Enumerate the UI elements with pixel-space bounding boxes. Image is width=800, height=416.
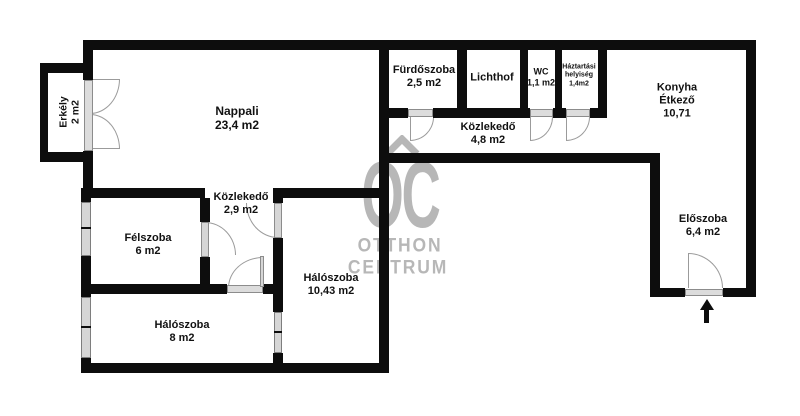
room-label-haloszoba-kis: Hálószoba 8 m2 (154, 319, 209, 345)
room-name: Hálószoba (154, 319, 209, 332)
room-name2: helyiség (562, 72, 595, 80)
room-label-eloszoba: Előszoba 6,4 m2 (679, 213, 727, 239)
window-tick (274, 331, 282, 333)
room-label-erkely: Erkély 2 m2 (58, 96, 83, 128)
wall-haloszoba-nagy-left-seg2 (273, 238, 283, 312)
wall-balcony-bottom (40, 152, 93, 162)
room-area: 10,43 m2 (303, 285, 358, 298)
wall-felszoba-right-seg1 (200, 198, 210, 222)
entrance-arrow-icon (700, 299, 714, 310)
room-area: 1,4m2 (562, 80, 595, 88)
room-label-konyha: Konyha Étkező 10,71 (657, 82, 697, 121)
wall-nappali-bottom-seg2 (275, 188, 379, 198)
room-area: 10,71 (657, 107, 697, 120)
room-area: 2 m2 (70, 96, 82, 128)
room-name: Közlekedő (213, 191, 268, 204)
wall-left-upper (83, 40, 93, 80)
room-label-furdoszoba: Fürdőszoba 2,5 m2 (393, 64, 455, 90)
wall-balcony-left (40, 63, 48, 162)
wall-toprow-bottom-seg2 (433, 108, 530, 118)
room-area: 23,4 m2 (215, 118, 259, 132)
wall-eloszoba-bottom-seg1 (650, 288, 685, 297)
wall-toprow-bottom-seg4 (590, 108, 607, 118)
wall-haloszoba-nagy-left-seg3 (273, 353, 283, 373)
wall-bedroom-divider-seg2 (263, 284, 283, 294)
room-name: Félszoba (124, 232, 171, 245)
room-name: Fürdőszoba (393, 64, 455, 77)
room-label-kozlekedo-also: Közlekedő 2,9 m2 (213, 191, 268, 217)
room-area: 2,5 m2 (393, 77, 455, 90)
felszoba-door-leaf (201, 222, 209, 257)
haloszoba-kis-door-sill (227, 285, 263, 293)
wall-top (83, 40, 756, 50)
haloszoba-nagy-door-leaf (274, 203, 282, 238)
room-label-nappali: Nappali 23,4 m2 (215, 104, 259, 132)
room-label-kozlekedo-felso: Közlekedő 4,8 m2 (460, 121, 515, 147)
room-name: Háztartási (562, 63, 595, 71)
wall-eloszoba-bottom-seg2 (723, 288, 756, 297)
room-label-wc: WC 1,1 m2 (527, 66, 555, 87)
room-area: 1,1 m2 (527, 77, 555, 88)
room-label-lichthof: Lichthof (470, 72, 513, 85)
room-area: 6,4 m2 (679, 226, 727, 239)
wall-haloszoba-nagy-left-seg1 (273, 188, 283, 203)
watermark-otthon-centrum: OC OTTHON CENTRUM (0, 0, 800, 416)
room-area: 8 m2 (154, 332, 209, 345)
wall-eloszoba-left (650, 155, 660, 297)
wall-left-lower (81, 358, 91, 373)
room-name: Konyha (657, 82, 697, 95)
entrance-door-sill (685, 289, 723, 296)
window-felszoba (81, 202, 91, 256)
room-name: Hálószoba (303, 272, 358, 285)
wall-bottom (81, 363, 389, 373)
window-tick (81, 227, 91, 229)
haztartasi-door-sill (566, 109, 590, 117)
wall-toprow-bottom-seg1 (389, 108, 408, 118)
furdoszoba-door-sill (408, 109, 433, 117)
room-label-haztartasi: Háztartási helyiség 1,4m2 (562, 63, 595, 88)
wall-toprow-bottom-seg3 (553, 108, 566, 118)
room-name: Előszoba (679, 213, 727, 226)
room-name: WC (527, 66, 555, 77)
wc-door-sill (530, 109, 553, 117)
balcony-door-sill (84, 80, 93, 151)
floorplan-canvas: OC OTTHON CENTRUM (0, 0, 800, 416)
room-name: Erkély (58, 96, 70, 128)
wall-bedroom-divider-seg1 (81, 284, 227, 294)
room-label-felszoba: Félszoba 6 m2 (124, 232, 171, 258)
wall-hall-bottom (379, 153, 660, 163)
room-name: Közlekedő (460, 121, 515, 134)
entrance-arrow-shaft (704, 310, 709, 323)
room-label-haloszoba-nagy: Hálószoba 10,43 m2 (303, 272, 358, 298)
wall-main-vertical (379, 40, 389, 373)
room-area: 6 m2 (124, 245, 171, 258)
haloszoba-kis-door-leaf (260, 256, 264, 287)
room-area: 4,8 m2 (460, 134, 515, 147)
watermark-line2: CENTRUM (348, 259, 448, 278)
room-name: Lichthof (470, 72, 513, 85)
room-name2: Étkező (657, 95, 697, 108)
wall-nappali-bottom-seg1 (81, 188, 205, 198)
watermark-line1: OTTHON (358, 237, 443, 256)
room-name: Nappali (215, 104, 259, 118)
wall-right (746, 40, 756, 297)
room-area: 2,9 m2 (213, 204, 268, 217)
window-tick (81, 326, 91, 328)
